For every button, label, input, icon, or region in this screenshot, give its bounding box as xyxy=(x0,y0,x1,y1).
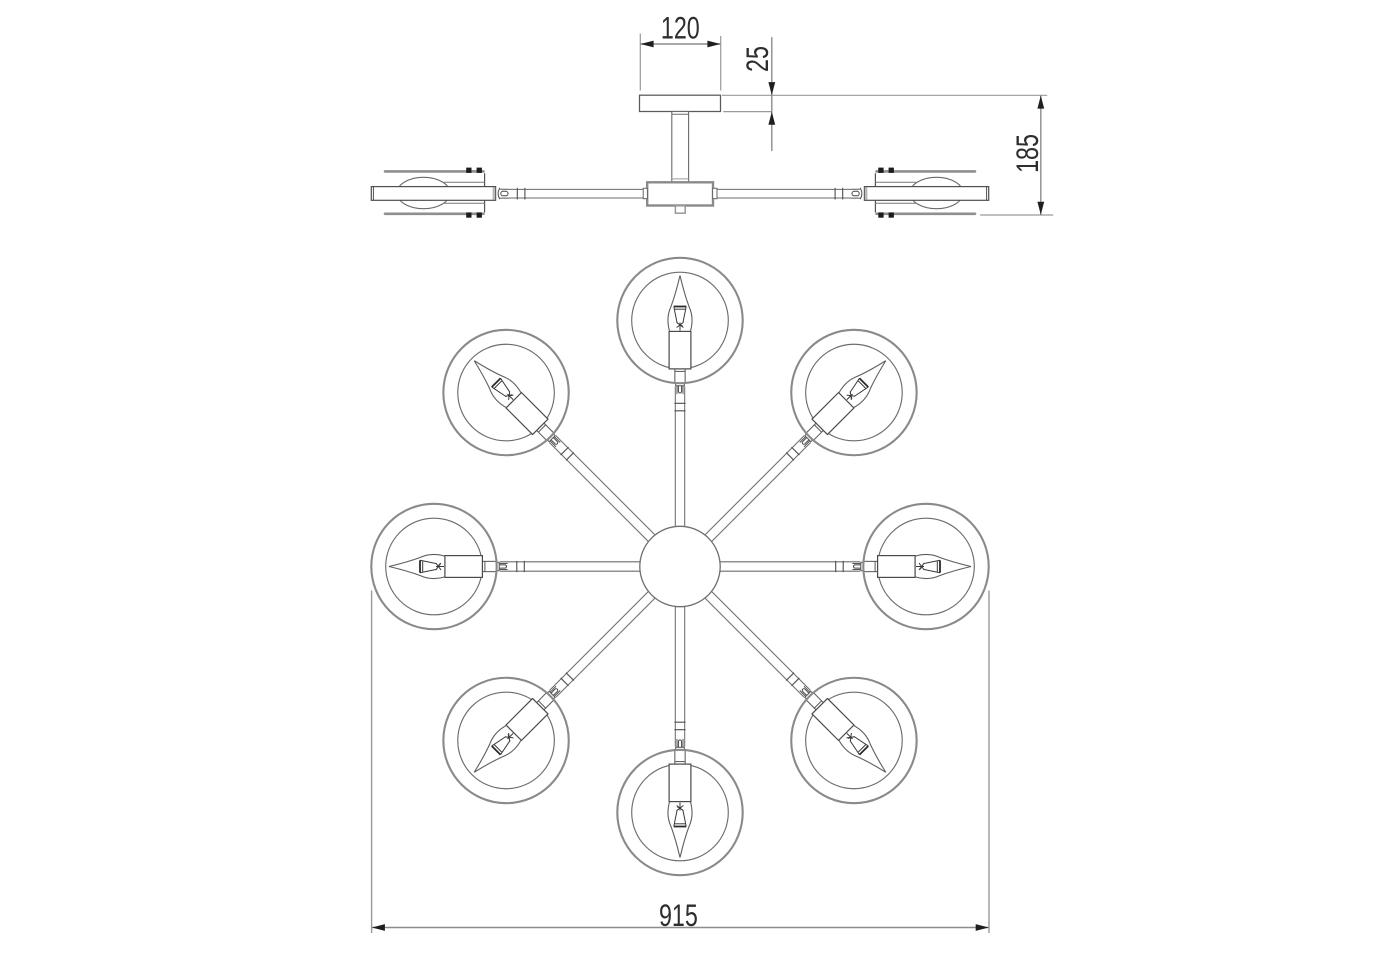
svg-text:120: 120 xyxy=(661,10,700,45)
svg-text:915: 915 xyxy=(659,897,698,932)
svg-text:25: 25 xyxy=(740,46,775,72)
svg-text:185: 185 xyxy=(1009,134,1044,173)
